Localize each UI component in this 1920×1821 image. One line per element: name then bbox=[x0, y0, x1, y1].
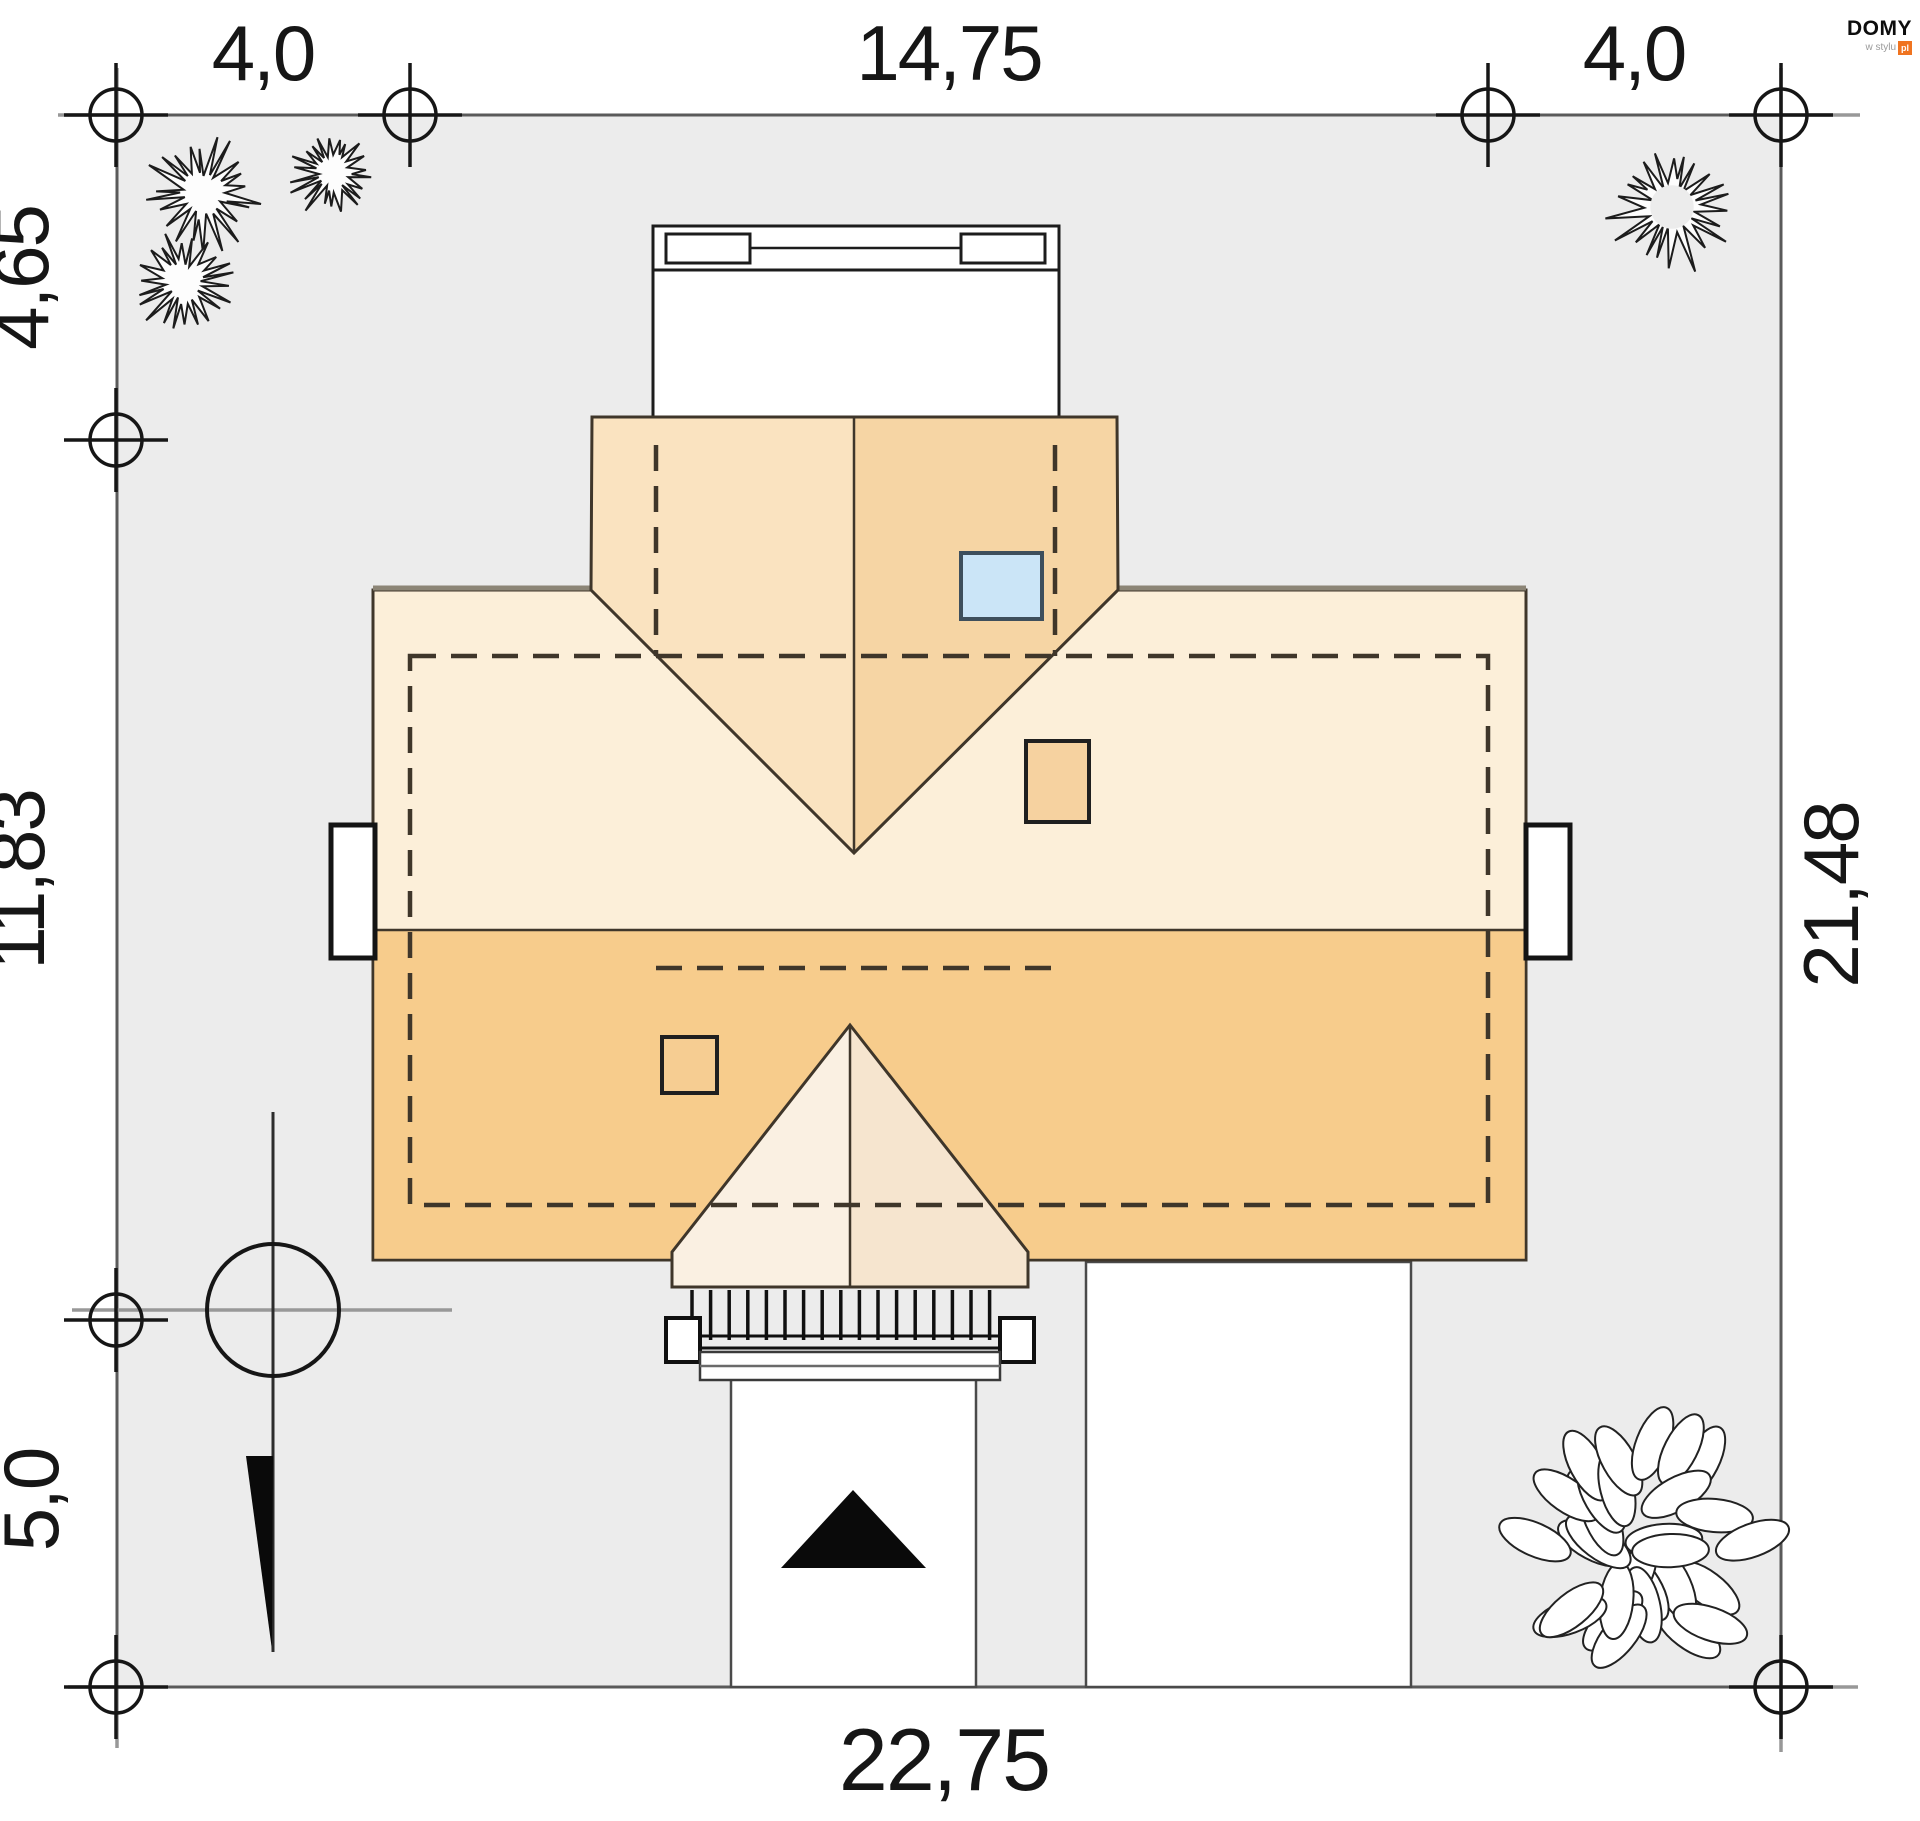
railing-right-box bbox=[961, 234, 1045, 263]
dim-top-left: 4,0 bbox=[212, 9, 314, 97]
chimney-lower bbox=[662, 1037, 717, 1093]
railing-post-left bbox=[666, 1318, 700, 1362]
logo-tagline: w stylu bbox=[1865, 43, 1896, 53]
dim-right-side: 21,48 bbox=[1787, 802, 1875, 987]
dim-top-right: 4,0 bbox=[1583, 9, 1685, 97]
railing-post-right bbox=[1000, 1318, 1034, 1362]
dim-top-center: 14,75 bbox=[856, 9, 1041, 97]
logo-tld-badge: pl bbox=[1898, 41, 1912, 55]
chimney-upper bbox=[1026, 741, 1089, 822]
bush-center bbox=[1650, 185, 1694, 229]
site-logo: DOMY w stylu pl bbox=[1802, 18, 1912, 55]
bay-window-right bbox=[1526, 825, 1570, 958]
skylight-window bbox=[961, 553, 1042, 619]
site-plan-page: 4,0 14,75 4,0 4,65 11,83 5,0 21,48 22,75… bbox=[0, 0, 1920, 1821]
site-plan-drawing: 4,0 14,75 4,0 4,65 11,83 5,0 21,48 22,75 bbox=[0, 0, 1920, 1821]
dim-left-lower: 5,0 bbox=[0, 1449, 75, 1551]
logo-brand-text: DOMY bbox=[1802, 18, 1912, 39]
dim-bottom: 22,75 bbox=[839, 1710, 1049, 1809]
dim-left-middle: 11,83 bbox=[0, 790, 61, 969]
driveway bbox=[1086, 1262, 1411, 1687]
dim-left-upper: 4,65 bbox=[0, 206, 65, 350]
bay-window-left bbox=[331, 825, 375, 958]
railing-left-box bbox=[666, 234, 750, 263]
